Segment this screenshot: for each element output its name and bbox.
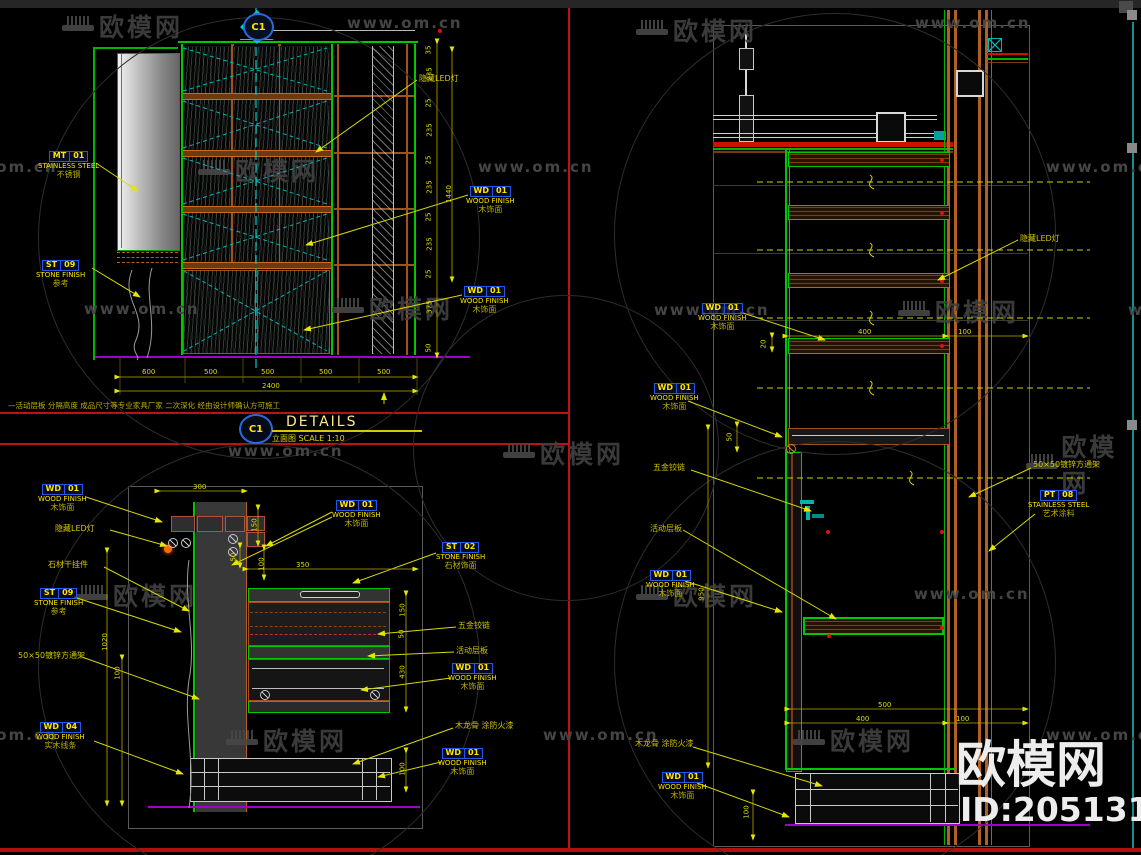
watermark-url: www.om.cn xyxy=(914,585,1030,603)
watermark-logo: 欧模网 xyxy=(636,12,757,48)
watermark-logo: 欧模网 xyxy=(198,152,319,188)
title-ref-circle: C1 xyxy=(239,414,273,444)
section-marker: C1 xyxy=(243,13,274,41)
watermark-url: www.om.cn xyxy=(228,442,344,460)
watermark-logo: 欧模网 xyxy=(898,293,1019,329)
material-label-wd01: WD01 WOOD FINISH木饰面 xyxy=(658,772,707,801)
dim-text: 25 xyxy=(424,213,432,222)
door-panel xyxy=(257,270,330,354)
dim-text: 100 xyxy=(956,715,969,723)
dim-text: 25 xyxy=(424,156,432,165)
sofa-icon xyxy=(198,160,230,180)
dim-text: 235 xyxy=(426,123,434,136)
material-label-st02: ST02 STONE FINISH石材饰面 xyxy=(436,542,485,571)
watermark-id: ID:2051312 xyxy=(960,793,1141,826)
dim-text-total: 2400 xyxy=(262,382,280,390)
material-label-wd04: WD04 WOOD FINISH实木线条 xyxy=(36,722,85,751)
watermark-logo: 欧模网 xyxy=(793,722,914,758)
dim-text: 400 xyxy=(856,715,869,723)
material-label-wd01: WD01 WOOD FINISH木饰面 xyxy=(466,186,515,215)
title-subtitle: 立面图 SCALE 1:10 xyxy=(272,433,345,444)
watermark-url: www.om.cn xyxy=(1128,301,1141,319)
material-label-wd01: WD01 WOOD FINISH木饰面 xyxy=(332,500,381,529)
dim-text: 500 xyxy=(878,701,891,709)
dim-text: 50 xyxy=(725,433,733,442)
dim-text: 400 xyxy=(858,328,871,336)
annotation-led: 隐藏LED灯 xyxy=(419,73,459,84)
dim-text: 500 xyxy=(261,368,274,376)
material-label-wd01: WD01 WOOD FINISH木饰面 xyxy=(698,303,747,332)
dim-text: 20 xyxy=(759,340,767,349)
dim-text: 375 xyxy=(426,300,434,313)
material-label-wd01: WD01 WOOD FINISH木饰面 xyxy=(438,748,487,777)
watermark-logo: 欧模网 xyxy=(332,290,453,326)
dim-text: 150 xyxy=(399,603,407,616)
watermark-logo: 欧模网 xyxy=(503,435,624,471)
annotation-keel: 木龙骨 涂防火漆 xyxy=(635,738,694,749)
dim-text: 100 xyxy=(958,328,971,336)
watermark-logo: 欧模网 xyxy=(226,722,347,758)
annotation-stone-hanger: 石材干挂件 xyxy=(48,559,88,570)
material-label-wd01: WD01 WOOD FINISH木饰面 xyxy=(646,570,695,599)
dim-text: 150 xyxy=(251,518,259,531)
material-label-wd01: WD01 WOOD FINISH木饰面 xyxy=(38,484,87,513)
annotation-led: 隐藏LED灯 xyxy=(55,523,95,534)
dim-text: 100 xyxy=(114,666,122,679)
watermark-url: www.om.cn xyxy=(915,14,1031,32)
dim-text: 100 xyxy=(399,762,407,775)
watermark-url: www.om.cn xyxy=(347,14,463,32)
annotation-keel: 木龙骨 涂防火漆 xyxy=(455,720,514,731)
dim-text: 50 xyxy=(397,630,405,639)
movable-shelf xyxy=(803,617,944,635)
dim-text: 50 xyxy=(229,553,237,562)
watermark-logo: 欧模网 xyxy=(76,577,197,613)
watermark-url: www.om.cn xyxy=(478,158,594,176)
dim-text: 25 xyxy=(424,270,432,279)
material-label-st09: ST09 STONE FINISH参考 xyxy=(34,588,83,617)
viewport-grip[interactable] xyxy=(1127,143,1137,153)
sofa-icon xyxy=(226,730,258,750)
title-underline xyxy=(272,430,422,432)
sofa-icon xyxy=(62,16,94,36)
dim-text: 235 xyxy=(426,180,434,193)
dim-text-total: 1440 xyxy=(445,185,453,203)
sofa-icon xyxy=(793,730,825,750)
dim-text: 235 xyxy=(426,237,434,250)
annotation-hinge: 五金铰链 xyxy=(458,620,490,631)
dim-text: 300 xyxy=(193,483,206,491)
material-label-wd01: WD01 WOOD FINISH木饰面 xyxy=(650,383,699,412)
material-label-pt08: PT08 STAINLESS STEEL艺术涂料 xyxy=(1028,490,1089,519)
watermark-big: 欧模网 xyxy=(956,740,1106,790)
annotation-shelf: 活动层板 xyxy=(650,523,682,534)
material-label-st09: ST09 STONE FINISH参考 xyxy=(36,260,85,289)
sofa-icon xyxy=(636,20,668,40)
dim-text: 50 xyxy=(424,344,432,353)
annotation-tube: 50×50镀锌方通架 xyxy=(1033,459,1100,470)
cad-canvas: 欧模网 欧模网 欧模网 欧模网 欧模网 欧模网 欧模网 欧模网 欧模网 欧模网 … xyxy=(0,0,1141,855)
dim-text: 500 xyxy=(377,368,390,376)
dim-text: 350 xyxy=(296,561,309,569)
annotation-shelf: 活动层板 xyxy=(456,645,488,656)
watermark-url: www.om.cn xyxy=(84,300,200,318)
sofa-icon xyxy=(332,298,364,318)
material-label-wd01: WD01 WOOD FINISH木饰面 xyxy=(448,663,497,692)
annotation-led: 隐藏LED灯 xyxy=(1020,233,1060,244)
material-label-mt01: MT01 STAINLESS STEEL不锈钢 xyxy=(38,151,99,180)
material-label-wd01: WD01 WOOD FINISH木饰面 xyxy=(460,286,509,315)
sofa-icon xyxy=(898,301,930,321)
watermark-logo: 欧模网 xyxy=(62,8,183,44)
top-window-strip xyxy=(0,0,1141,8)
dim-text: 25 xyxy=(424,99,432,108)
dim-text: 600 xyxy=(142,368,155,376)
title-text: DETAILS xyxy=(286,414,357,430)
watermark-url: www.om.cn xyxy=(1046,158,1141,176)
dim-text: 100 xyxy=(743,805,751,818)
dim-text: 500 xyxy=(204,368,217,376)
dim-text: 35 xyxy=(424,46,432,55)
dim-text: 430 xyxy=(399,665,407,678)
annotation-tube: 50×50镀锌方通架 xyxy=(18,650,85,661)
dim-text: 500 xyxy=(319,368,332,376)
dim-text: 950 xyxy=(698,587,706,600)
sofa-icon xyxy=(503,443,535,463)
revision-note: —活动层板 分隔高度 成品尺寸等专业家具厂家 二次深化 经由设计师确认方可施工 xyxy=(8,400,280,411)
dim-text: 100 xyxy=(258,557,266,570)
dim-text: 1020 xyxy=(101,633,109,651)
viewport-grip[interactable] xyxy=(1127,10,1137,20)
annotation-hinge: 五金铰链 xyxy=(653,462,685,473)
